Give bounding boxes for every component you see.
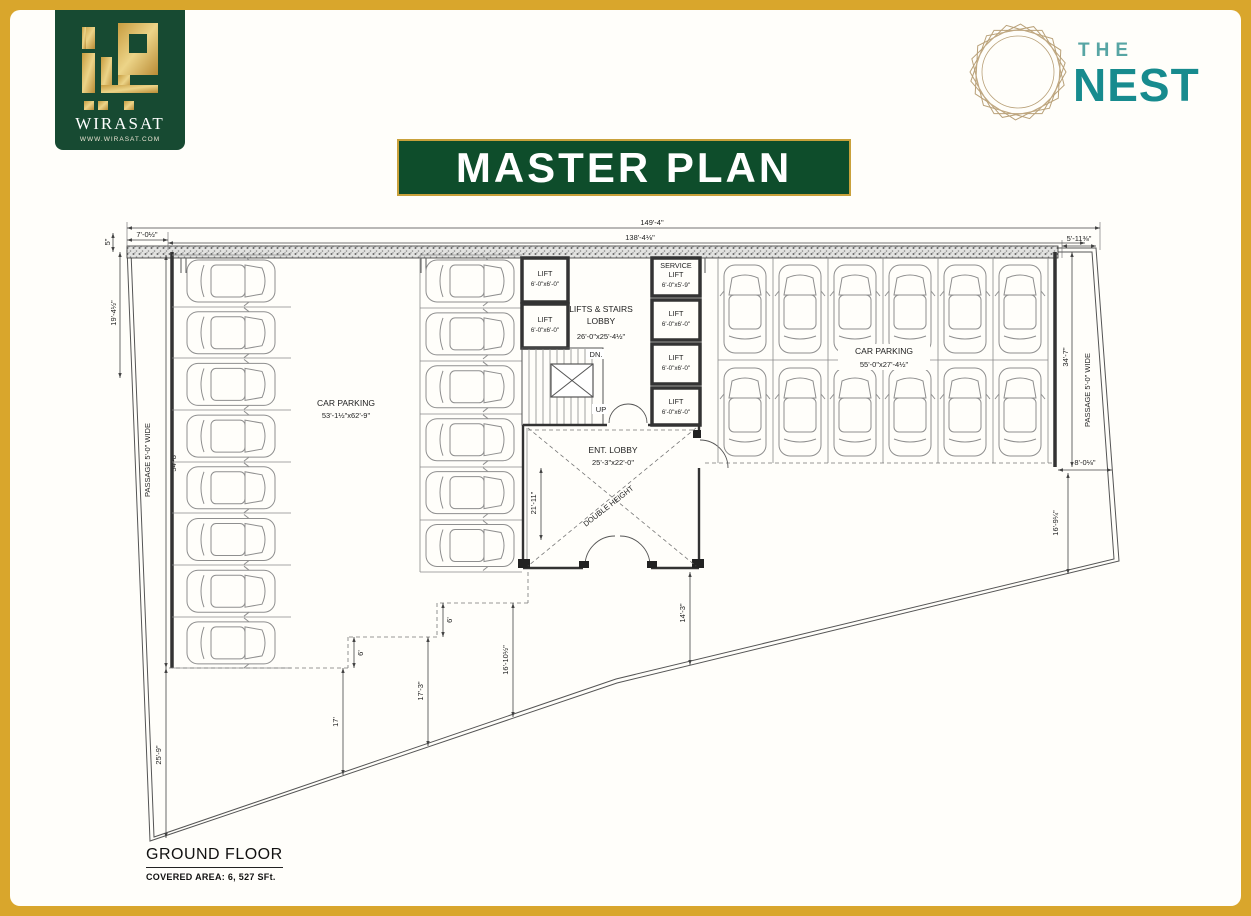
car-symbol (187, 515, 275, 565)
lifts-lobby-label-2: LOBBY (587, 316, 616, 326)
car-symbol (775, 265, 825, 353)
car-symbol (187, 411, 275, 461)
car-symbol (995, 265, 1045, 353)
car-symbol (187, 308, 275, 358)
car-symbol (995, 368, 1045, 456)
car-symbol (940, 265, 990, 353)
car-symbol (187, 463, 275, 513)
car-symbol (187, 359, 275, 409)
dim-right-upper: 34'-7" (1061, 347, 1070, 366)
car-symbol (426, 362, 514, 412)
floor-title: GROUND FLOOR (146, 846, 283, 868)
lift-label: LIFT (669, 309, 684, 318)
car-symbol (830, 265, 880, 353)
dim-top-right: 5'-11⅜" (1067, 234, 1092, 243)
lift-label: LIFT (538, 315, 553, 324)
dim-overall-width: 149'-4" (640, 218, 664, 227)
right-passage: 34'-7" PASSAGE 5'-0" WIDE 8'-0⅛" 16'-9¼" (1051, 252, 1112, 574)
car-symbol (187, 618, 275, 668)
passage-left-label: PASSAGE 5'-0" WIDE (143, 423, 152, 497)
car-symbol (775, 368, 825, 456)
dim-17-3: 17'-3" (416, 681, 425, 700)
left-parking (172, 252, 291, 668)
dim-inner-width: 138'-4⅛" (625, 233, 655, 242)
car-symbol (187, 256, 275, 306)
lift-label: LIFT (669, 397, 684, 406)
service-lift-size: 6'-0"x5'-9" (662, 282, 690, 289)
dim-top-left: 7'-0½" (136, 230, 158, 239)
car-symbol (187, 566, 275, 616)
car-symbol (885, 265, 935, 353)
car-symbol (720, 368, 770, 456)
entrance-lobby: ENT. LOBBY 25'-3"x22'-0" DOUBLE HEIGHT 2… (518, 425, 728, 568)
car-symbol (885, 368, 935, 456)
car-symbol (830, 368, 880, 456)
right-parking-label: CAR PARKING (855, 346, 913, 356)
right-parking-cars-row2 (720, 368, 1045, 456)
dim-lobby: 21'-11" (529, 491, 538, 514)
left-passage: 19'-4½" PASSAGE 5'-0" WIDE 54'-8" 25'-9" (109, 252, 178, 838)
dim-right-lower: 16'-9¼" (1051, 510, 1060, 536)
car-symbol (426, 309, 514, 359)
service-lift-label: SERVICE (660, 261, 692, 270)
lift-label: LIFT (669, 353, 684, 362)
covered-area-label: COVERED AREA: 6, 527 SFt. (146, 872, 276, 882)
middle-parking: CAR PARKING 53'-1½"x62'-9" (317, 255, 522, 572)
car-symbol (426, 415, 514, 465)
dim-16-10: 16'-10½" (501, 645, 510, 675)
dim-right-small: 8'-0⅛" (1074, 458, 1096, 467)
passage-right-label: PASSAGE 5'-0" WIDE (1083, 353, 1092, 427)
lift-label: LIFT (538, 269, 553, 278)
dim-14-3: 14'-3" (678, 603, 687, 622)
lift-size: 6'-0"x6'-0" (662, 365, 690, 372)
car-symbol (720, 265, 770, 353)
dim-step-b: 6' (356, 650, 365, 656)
dim-left-lower: 25'-9" (154, 745, 163, 764)
service-lift-label: LIFT (669, 270, 684, 279)
lifts-lobby-size: 26'-0"x25'-4½" (577, 332, 626, 341)
dim-step-a: 6' (445, 617, 454, 623)
lift-core: LIFT 6'-0"x6'-0" LIFT 6'-0"x6'-0" SERVIC… (522, 258, 700, 425)
lifts-lobby-label-1: LIFTS & STAIRS (569, 304, 633, 314)
dim-left-upper: 19'-4½" (109, 300, 118, 326)
stairs-down-label: DN. (590, 350, 603, 359)
stairs-up-label: UP (596, 405, 606, 414)
lift-size: 6'-0"x6'-0" (662, 321, 690, 328)
right-parking-cars-row1 (720, 265, 1045, 353)
left-parking-label: CAR PARKING (317, 398, 375, 408)
floor-plan-drawing: 149'-4" 138'-4⅛" 7'-0½" 5'-11⅜" 5" 19'-4… (0, 0, 1251, 916)
car-symbol (426, 468, 514, 518)
dim-left-small: 5" (103, 238, 112, 245)
car-symbol (940, 368, 990, 456)
top-wall (127, 246, 1058, 273)
left-parking-size: 53'-1½"x62'-9" (322, 411, 371, 420)
right-parking: CAR PARKING 55'-0"x27'-4½" (705, 252, 1055, 467)
double-height-label: DOUBLE HEIGHT (582, 483, 636, 528)
ent-lobby-label: ENT. LOBBY (588, 445, 637, 455)
right-parking-size: 55'-0"x27'-4½" (860, 360, 909, 369)
ent-lobby-size: 25'-3"x22'-0" (592, 458, 634, 467)
car-symbol (426, 256, 514, 306)
stairs: DN. UP (522, 348, 647, 425)
car-symbol (426, 521, 514, 571)
dim-17: 17' (331, 717, 340, 727)
middle-parking-cars (426, 256, 514, 571)
lift-size: 6'-0"x6'-0" (662, 409, 690, 416)
lift-size: 6'-0"x6'-0" (531, 327, 559, 334)
lift-size: 6'-0"x6'-0" (531, 281, 559, 288)
master-plan-page: WIRASAT WWW.WIRASAT.COM THE NEST MASTER … (0, 0, 1251, 916)
